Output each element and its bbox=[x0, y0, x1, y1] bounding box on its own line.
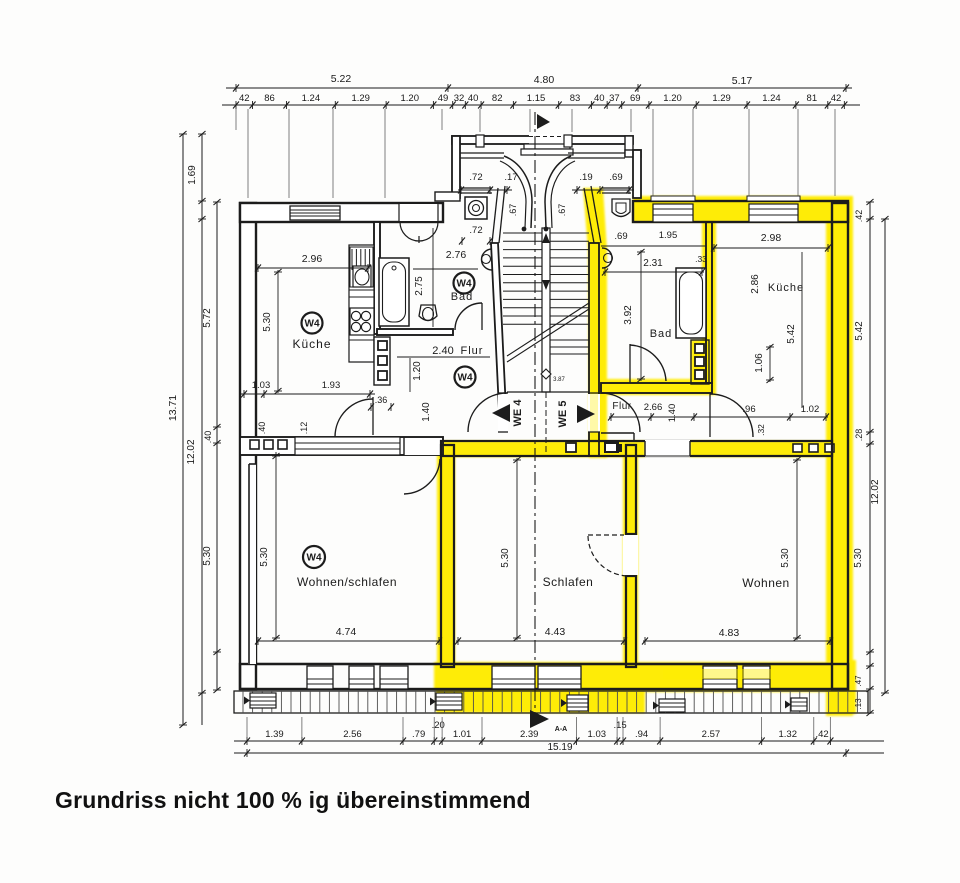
svg-text:W4: W4 bbox=[457, 279, 472, 290]
svg-text:.28: .28 bbox=[854, 429, 864, 442]
svg-text:4.43: 4.43 bbox=[545, 626, 566, 638]
svg-text:Flur: Flur bbox=[461, 345, 484, 357]
svg-text:3.92: 3.92 bbox=[623, 305, 634, 325]
svg-text:.72: .72 bbox=[469, 172, 482, 183]
svg-text:WE 4: WE 4 bbox=[512, 399, 524, 427]
svg-text:5.30: 5.30 bbox=[853, 548, 864, 568]
svg-text:1.15: 1.15 bbox=[527, 93, 546, 104]
svg-text:1.20: 1.20 bbox=[663, 93, 682, 104]
svg-text:.40: .40 bbox=[257, 422, 267, 435]
svg-text:.72: .72 bbox=[469, 225, 482, 236]
svg-text:Wohnen: Wohnen bbox=[742, 576, 789, 590]
svg-text:.36: .36 bbox=[375, 395, 388, 405]
svg-text:.33: .33 bbox=[695, 254, 707, 264]
svg-text:1.20: 1.20 bbox=[412, 361, 423, 381]
svg-text:.47: .47 bbox=[854, 675, 863, 687]
svg-text:37: 37 bbox=[609, 93, 620, 104]
svg-text:2.75: 2.75 bbox=[414, 276, 425, 296]
svg-text:2.31: 2.31 bbox=[643, 258, 663, 269]
svg-text:.19: .19 bbox=[579, 172, 592, 183]
svg-text:.67: .67 bbox=[508, 204, 518, 217]
svg-text:86: 86 bbox=[264, 93, 275, 104]
svg-text:12.02: 12.02 bbox=[186, 439, 197, 464]
svg-text:32: 32 bbox=[454, 93, 465, 104]
svg-text:Küche: Küche bbox=[292, 337, 331, 351]
svg-text:1.24: 1.24 bbox=[762, 93, 781, 104]
svg-text:4.74: 4.74 bbox=[336, 626, 357, 638]
svg-text:2.39: 2.39 bbox=[520, 729, 539, 740]
svg-text:W4: W4 bbox=[305, 319, 320, 330]
svg-text:5.30: 5.30 bbox=[202, 546, 213, 566]
svg-text:1.24: 1.24 bbox=[302, 93, 321, 104]
svg-text:1.93: 1.93 bbox=[322, 380, 341, 391]
svg-text:5.30: 5.30 bbox=[780, 548, 791, 568]
svg-text:.12: .12 bbox=[299, 422, 309, 435]
svg-text:Küche: Küche bbox=[768, 282, 804, 294]
svg-text:12.02: 12.02 bbox=[870, 479, 881, 504]
svg-text:5.22: 5.22 bbox=[331, 73, 352, 85]
svg-text:.94: .94 bbox=[635, 729, 648, 740]
svg-text:.69: .69 bbox=[609, 172, 622, 183]
svg-text:1.40: 1.40 bbox=[421, 402, 432, 422]
svg-text:2.40: 2.40 bbox=[432, 345, 453, 357]
svg-text:15.19: 15.19 bbox=[547, 742, 572, 753]
svg-text:WE 5: WE 5 bbox=[557, 401, 569, 428]
svg-text:2.56: 2.56 bbox=[343, 729, 362, 740]
svg-text:42: 42 bbox=[831, 93, 842, 104]
svg-text:.79: .79 bbox=[412, 729, 425, 740]
svg-text:.69: .69 bbox=[614, 231, 627, 242]
svg-text:5.72: 5.72 bbox=[202, 308, 213, 328]
svg-text:2.76: 2.76 bbox=[446, 249, 467, 261]
svg-text:2.57: 2.57 bbox=[702, 729, 721, 740]
svg-text:.20: .20 bbox=[432, 720, 445, 731]
svg-text:40: 40 bbox=[468, 93, 479, 104]
svg-text:1.03: 1.03 bbox=[588, 729, 607, 740]
svg-text:.67: .67 bbox=[557, 204, 567, 217]
svg-text:83: 83 bbox=[570, 93, 581, 104]
svg-text:Wohnen/schlafen: Wohnen/schlafen bbox=[297, 575, 397, 589]
svg-text:40: 40 bbox=[594, 93, 605, 104]
svg-text:4.80: 4.80 bbox=[534, 74, 555, 86]
svg-text:1.29: 1.29 bbox=[712, 93, 731, 104]
svg-text:.32: .32 bbox=[756, 424, 766, 436]
svg-text:4.83: 4.83 bbox=[719, 627, 740, 639]
svg-text:Schlafen: Schlafen bbox=[543, 575, 594, 589]
svg-text:1.06: 1.06 bbox=[754, 353, 765, 373]
svg-text:2.98: 2.98 bbox=[761, 232, 782, 244]
svg-text:5.30: 5.30 bbox=[500, 548, 511, 568]
svg-text:1.95: 1.95 bbox=[659, 230, 678, 241]
svg-text:82: 82 bbox=[492, 93, 503, 104]
svg-text:W4: W4 bbox=[458, 373, 473, 384]
svg-text:1.29: 1.29 bbox=[351, 93, 370, 104]
svg-text:.42: .42 bbox=[854, 210, 864, 223]
svg-text:.96: .96 bbox=[742, 404, 755, 415]
svg-text:Bad: Bad bbox=[650, 328, 673, 340]
svg-text:1.39: 1.39 bbox=[265, 729, 284, 740]
svg-text:.15: .15 bbox=[613, 720, 626, 731]
svg-text:A-A: A-A bbox=[555, 726, 567, 733]
svg-text:1.69: 1.69 bbox=[187, 165, 198, 185]
svg-text:2.66: 2.66 bbox=[644, 402, 663, 413]
svg-text:3.87: 3.87 bbox=[553, 377, 565, 383]
svg-text:.17: .17 bbox=[504, 172, 517, 183]
svg-text:1.20: 1.20 bbox=[401, 93, 420, 104]
svg-text:5.42: 5.42 bbox=[854, 321, 865, 341]
svg-text:1.40: 1.40 bbox=[667, 404, 678, 423]
svg-text:.40: .40 bbox=[203, 431, 213, 444]
svg-text:69: 69 bbox=[630, 93, 641, 104]
svg-text:Bad: Bad bbox=[451, 291, 474, 303]
svg-text:.42: .42 bbox=[816, 729, 829, 740]
svg-text:2.86: 2.86 bbox=[750, 274, 761, 294]
svg-text:Flur: Flur bbox=[612, 401, 631, 412]
svg-text:5.30: 5.30 bbox=[259, 547, 270, 567]
svg-text:5.42: 5.42 bbox=[786, 324, 797, 344]
svg-text:1.32: 1.32 bbox=[779, 729, 798, 740]
svg-text:42: 42 bbox=[239, 93, 250, 104]
svg-text:5.17: 5.17 bbox=[732, 75, 753, 87]
svg-text:49: 49 bbox=[438, 93, 449, 104]
svg-text:.13: .13 bbox=[854, 698, 863, 710]
svg-text:81: 81 bbox=[807, 93, 818, 104]
svg-text:13.71: 13.71 bbox=[167, 395, 179, 421]
svg-text:1.03: 1.03 bbox=[252, 380, 271, 391]
svg-text:5.30: 5.30 bbox=[262, 312, 273, 332]
svg-text:1.02: 1.02 bbox=[801, 404, 820, 415]
svg-text:1.01: 1.01 bbox=[453, 729, 472, 740]
svg-text:W4: W4 bbox=[307, 553, 322, 564]
svg-text:2.96: 2.96 bbox=[302, 253, 323, 265]
